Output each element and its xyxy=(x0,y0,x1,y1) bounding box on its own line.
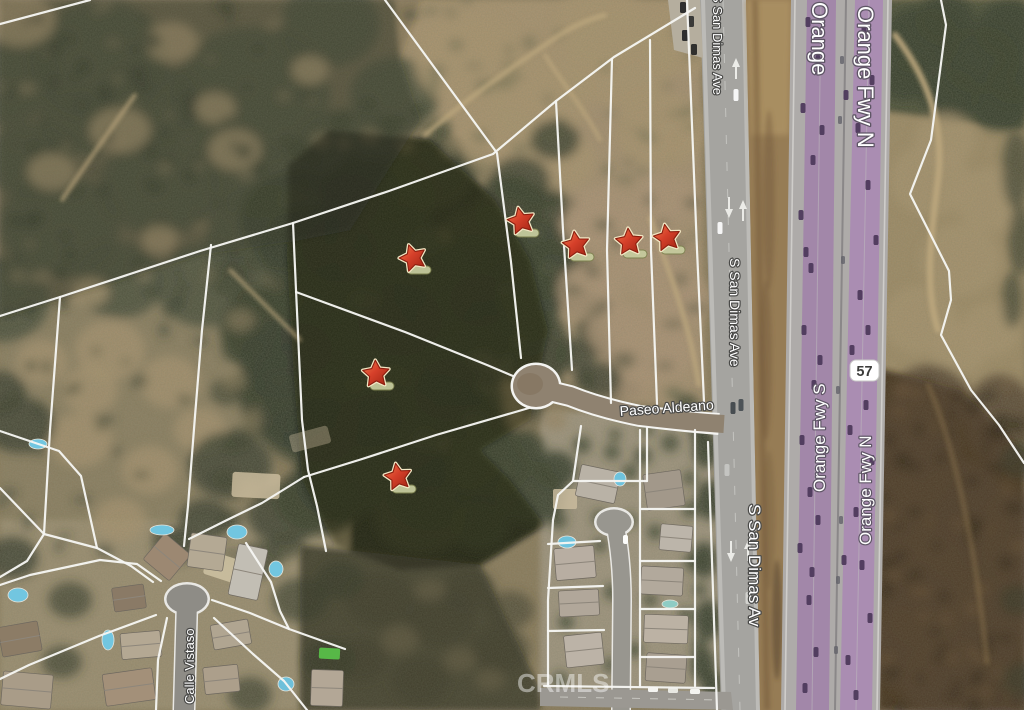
svg-text:S San Dimas Ave: S San Dimas Ave xyxy=(727,258,743,367)
svg-text:S San Dimas Ave: S San Dimas Ave xyxy=(710,0,725,95)
svg-text:Orange Fwy N: Orange Fwy N xyxy=(856,435,875,545)
svg-text:Orange Fwy S: Orange Fwy S xyxy=(810,383,829,492)
svg-text:CRMLS: CRMLS xyxy=(517,668,609,698)
svg-text:57: 57 xyxy=(856,364,872,380)
svg-text:Orange: Orange xyxy=(807,2,832,75)
svg-text:S San Dimas Av: S San Dimas Av xyxy=(745,504,764,627)
svg-text:Calle Vistaso: Calle Vistaso xyxy=(182,628,197,704)
svg-text:Orange Fwy N: Orange Fwy N xyxy=(853,6,878,148)
